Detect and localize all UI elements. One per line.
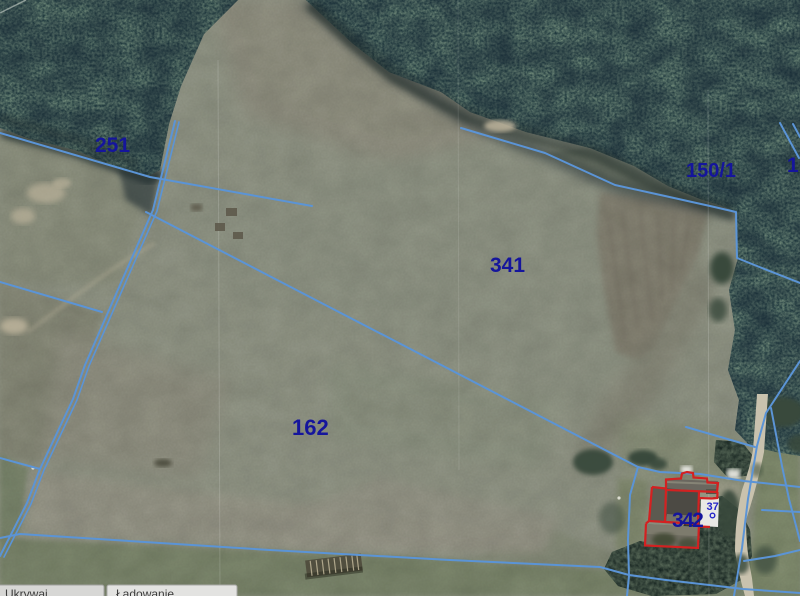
svg-text:Ładowanie: Ładowanie (116, 587, 174, 596)
svg-text:251: 251 (95, 134, 130, 157)
svg-text:150/1: 150/1 (686, 160, 736, 182)
svg-text:37: 37 (707, 501, 719, 513)
svg-text:Ukrywaj: Ukrywaj (5, 587, 48, 596)
svg-text:1: 1 (787, 154, 799, 177)
svg-text:162: 162 (292, 415, 329, 440)
svg-text:341: 341 (490, 254, 525, 277)
svg-text:342: 342 (672, 509, 703, 532)
